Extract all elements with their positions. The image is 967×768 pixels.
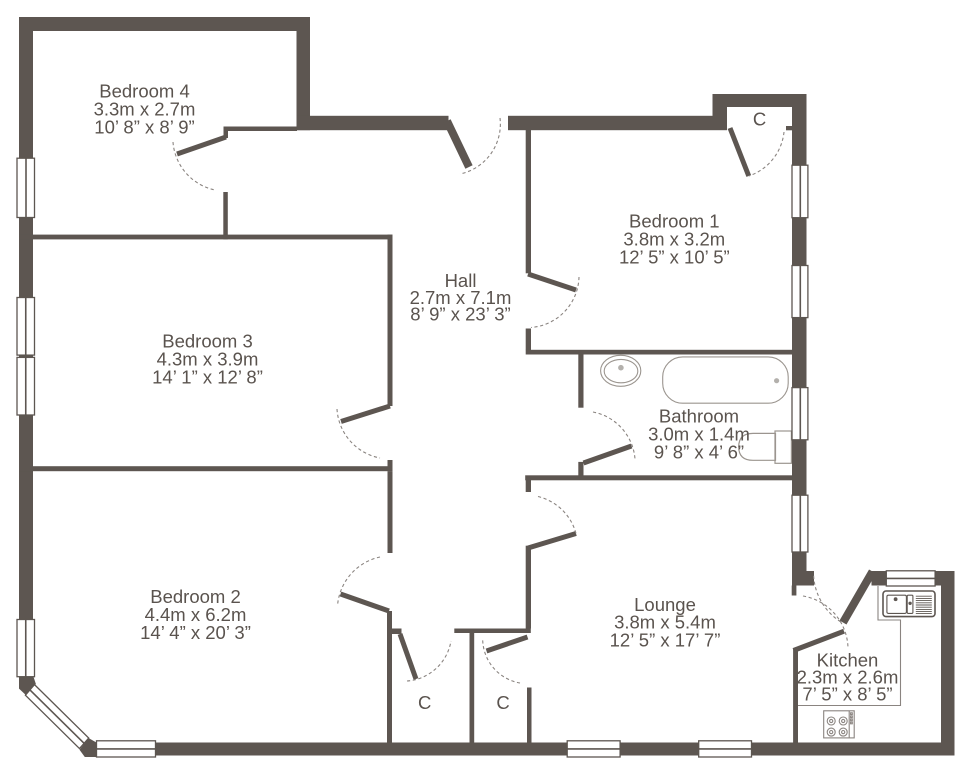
svg-text:12’ 5” x 17’ 7”: 12’ 5” x 17’ 7”	[610, 630, 721, 651]
svg-text:C: C	[496, 692, 509, 713]
svg-text:7’ 5” x 8’ 5”: 7’ 5” x 8’ 5”	[802, 683, 892, 704]
svg-text:14’ 1” x 12’ 8”: 14’ 1” x 12’ 8”	[152, 366, 263, 387]
svg-text:C: C	[418, 692, 431, 713]
svg-text:8’ 9” x 23’ 3”: 8’ 9” x 23’ 3”	[410, 304, 510, 325]
svg-text:9’ 8” x 4’ 6”: 9’ 8” x 4’ 6”	[654, 442, 744, 463]
svg-text:12’ 5” x 10’ 5”: 12’ 5” x 10’ 5”	[619, 246, 730, 267]
svg-text:C: C	[753, 108, 766, 129]
svg-text:14’ 4” x 20’ 3”: 14’ 4” x 20’ 3”	[140, 622, 251, 643]
svg-text:10’ 8” x 8’ 9”: 10’ 8” x 8’ 9”	[94, 117, 194, 138]
